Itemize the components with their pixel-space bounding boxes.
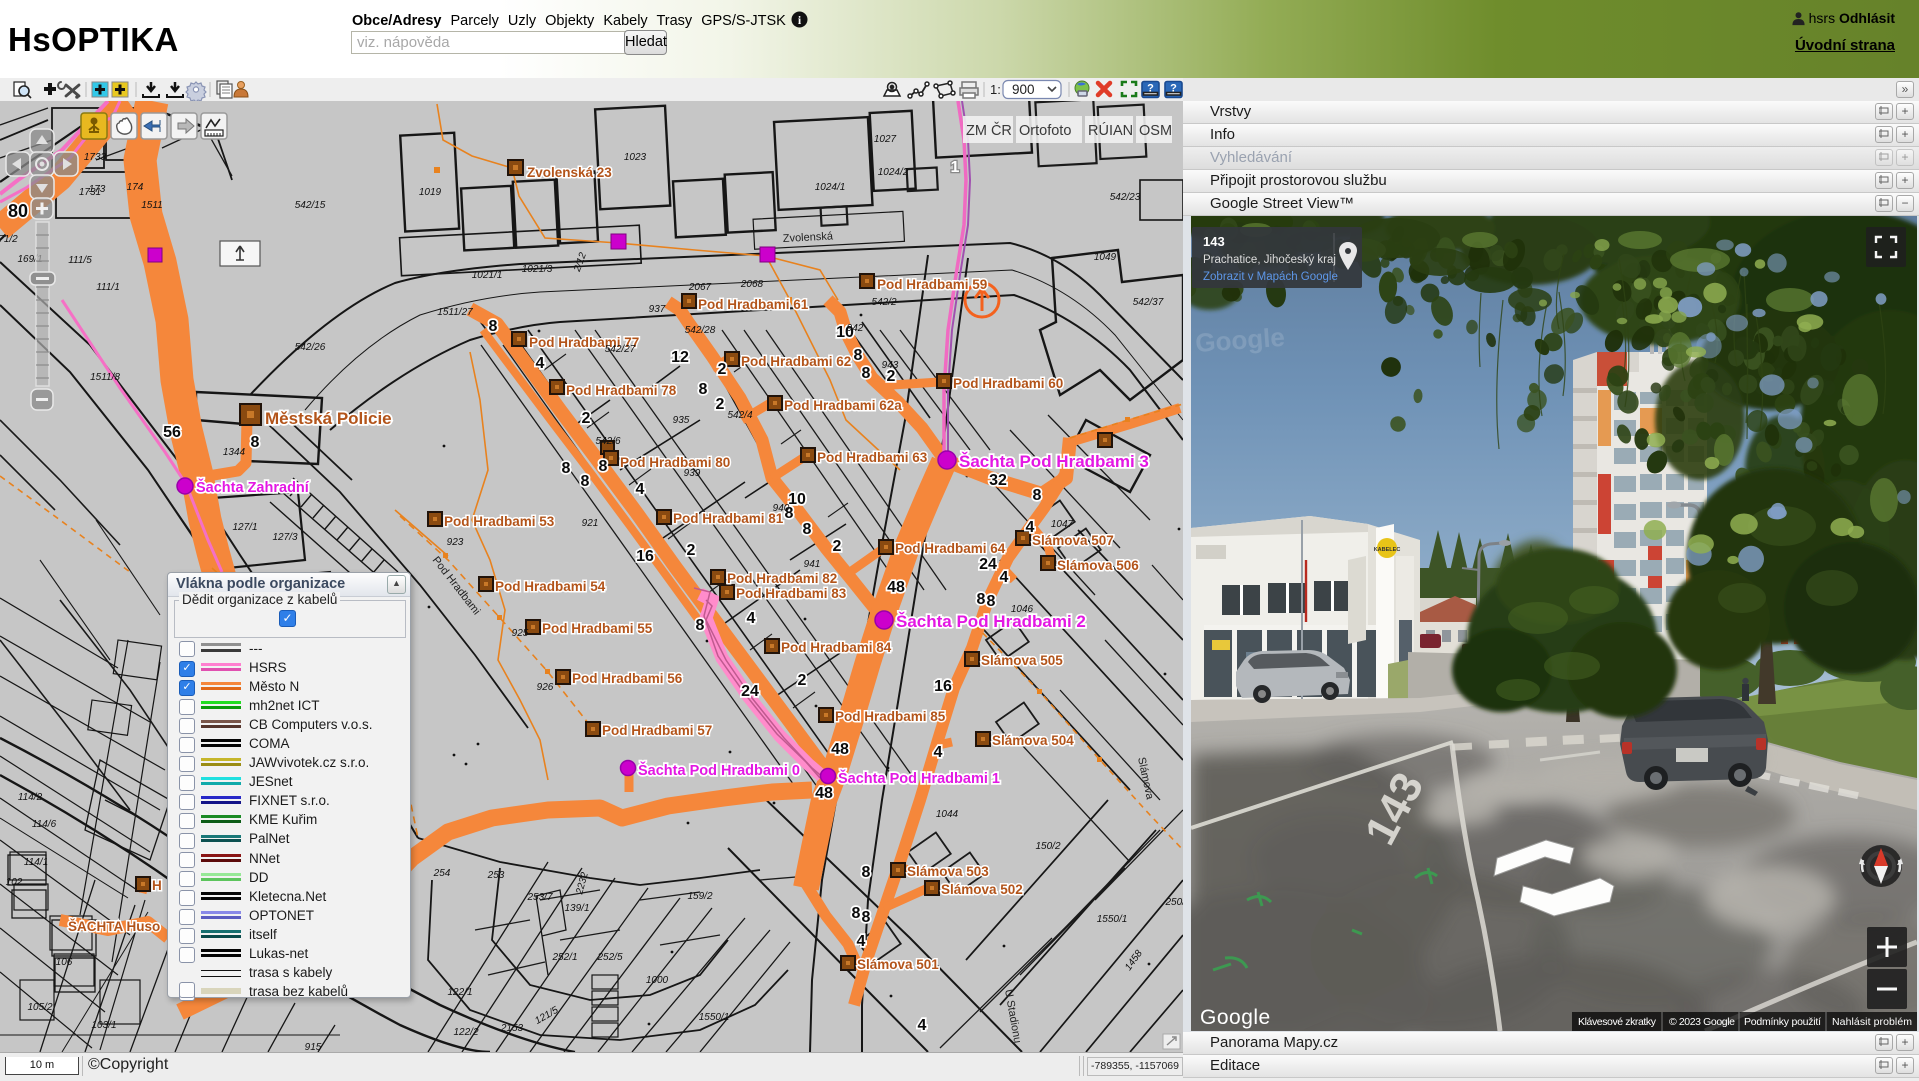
svg-text:12: 12 <box>671 349 689 366</box>
svg-text:4: 4 <box>1026 519 1035 536</box>
svg-text:Pod Hradbami 62: Pod Hradbami 62 <box>741 354 851 369</box>
svg-text:8: 8 <box>854 347 863 364</box>
svg-text:1024/2: 1024/2 <box>878 167 909 178</box>
svg-text:Šachta Pod Hradbami 1: Šachta Pod Hradbami 1 <box>838 769 1000 787</box>
svg-text:900: 900 <box>1012 82 1035 97</box>
svg-text:111/1: 111/1 <box>96 282 120 293</box>
svg-text:253/7: 253/7 <box>526 892 552 903</box>
svg-text:8: 8 <box>489 318 498 335</box>
svg-text:4: 4 <box>857 933 866 950</box>
svg-text:139/1: 139/1 <box>564 903 589 914</box>
svg-text:2: 2 <box>833 538 842 555</box>
svg-text:Šachta Pod Hradbami 2: Šachta Pod Hradbami 2 <box>896 612 1086 631</box>
svg-text:ŠACHTA Huso: ŠACHTA Huso <box>68 919 160 934</box>
svg-text:Pod Hradbami 60: Pod Hradbami 60 <box>953 376 1063 391</box>
svg-text:122/1: 122/1 <box>447 987 472 998</box>
svg-text:Pod Hradbami 57: Pod Hradbami 57 <box>602 723 712 738</box>
svg-text:Nahlásit problém: Nahlásit problém <box>1832 1016 1912 1028</box>
svg-text:940: 940 <box>773 503 790 514</box>
svg-text:Slámova 503: Slámova 503 <box>907 864 989 879</box>
svg-text:542/28: 542/28 <box>685 325 716 336</box>
svg-text:Pod Hradbami 83: Pod Hradbami 83 <box>736 586 847 601</box>
svg-text:8: 8 <box>581 473 590 490</box>
svg-text:Slámova 502: Slámova 502 <box>941 882 1023 897</box>
svg-text:105/2: 105/2 <box>27 1002 52 1013</box>
svg-text:OSM: OSM <box>1139 123 1172 139</box>
svg-text:127/3: 127/3 <box>272 532 297 543</box>
svg-text:4: 4 <box>1000 569 1009 586</box>
svg-text:Zobrazit v Mapách Google: Zobrazit v Mapách Google <box>1203 271 1338 283</box>
svg-text:2: 2 <box>798 672 807 689</box>
svg-text:48: 48 <box>831 741 849 758</box>
svg-text:H: H <box>152 878 162 893</box>
svg-text:24: 24 <box>979 556 997 573</box>
svg-text:114/2: 114/2 <box>18 792 43 803</box>
svg-text:8: 8 <box>562 460 571 477</box>
svg-text:941: 941 <box>804 559 821 570</box>
svg-text:16: 16 <box>636 548 654 565</box>
svg-text:8: 8 <box>852 905 861 922</box>
svg-text:173: 173 <box>89 184 106 195</box>
svg-text:253: 253 <box>487 870 505 881</box>
svg-text:2153: 2153 <box>500 1023 524 1034</box>
svg-text:127/1: 127/1 <box>232 522 257 533</box>
svg-text:2068: 2068 <box>740 279 764 290</box>
svg-text:542/4: 542/4 <box>727 410 752 421</box>
svg-text:KABELEC: KABELEC <box>1374 547 1401 553</box>
svg-text:1: 1 <box>951 159 960 176</box>
svg-text:114/6: 114/6 <box>32 819 57 830</box>
svg-text:Zvolenská 23: Zvolenská 23 <box>527 165 612 180</box>
svg-text:1044: 1044 <box>936 809 959 820</box>
svg-text:Městská Policie: Městská Policie <box>265 409 392 428</box>
svg-text:Pod Hradbami 53: Pod Hradbami 53 <box>444 514 555 529</box>
svg-text:1027: 1027 <box>874 134 897 145</box>
svg-text:Slámova 505: Slámova 505 <box>981 653 1063 668</box>
svg-text:1021/3: 1021/3 <box>522 264 553 275</box>
svg-text:102: 102 <box>6 877 23 888</box>
svg-text:80: 80 <box>8 201 28 221</box>
svg-text:8: 8 <box>862 909 871 926</box>
svg-text:254: 254 <box>433 868 451 879</box>
svg-text:1000: 1000 <box>646 975 669 986</box>
svg-text:174: 174 <box>127 182 144 193</box>
svg-text:Pod Hradbami 85: Pod Hradbami 85 <box>835 709 946 724</box>
svg-text:1511/27: 1511/27 <box>437 307 473 318</box>
svg-text:542/27: 542/27 <box>605 344 636 355</box>
svg-text:1:: 1: <box>990 82 1001 97</box>
svg-text:2: 2 <box>687 542 696 559</box>
svg-text:Podmínky použití: Podmínky použití <box>1744 1016 1821 1028</box>
svg-text:542/26: 542/26 <box>295 342 326 353</box>
svg-text:250/8: 250/8 <box>1164 897 1183 908</box>
svg-text:143: 143 <box>1203 234 1225 249</box>
svg-text:71/2: 71/2 <box>0 234 18 245</box>
svg-text:32: 32 <box>989 472 1007 489</box>
svg-text:© 2023 Google: © 2023 Google <box>1669 1016 1735 1028</box>
svg-text:542/2: 542/2 <box>871 297 896 308</box>
svg-text:Pod Hradbami 62a: Pod Hradbami 62a <box>784 398 902 413</box>
svg-text:114/1: 114/1 <box>24 857 48 868</box>
svg-text:4: 4 <box>918 1017 927 1034</box>
svg-text:Google: Google <box>1194 322 1285 358</box>
svg-text:937: 937 <box>649 304 666 315</box>
svg-text:8: 8 <box>599 458 608 475</box>
svg-text:Pod Hradbami 82: Pod Hradbami 82 <box>727 571 837 586</box>
svg-text:Slámova 506: Slámova 506 <box>1057 558 1139 573</box>
svg-text:Šachta Zahradní: Šachta Zahradní <box>196 478 310 496</box>
svg-text:8: 8 <box>977 591 986 608</box>
svg-text:Pod Hradbami 78: Pod Hradbami 78 <box>566 383 677 398</box>
svg-text:56: 56 <box>163 424 181 441</box>
svg-text:Prachatice, Jihočeský kraj: Prachatice, Jihočeský kraj <box>1203 254 1336 266</box>
svg-text:4: 4 <box>747 610 756 627</box>
svg-text:106: 106 <box>56 957 73 968</box>
svg-text:1550/1: 1550/1 <box>699 1012 730 1023</box>
svg-text:915: 915 <box>305 1042 322 1052</box>
svg-text:Pod Hradbami 55: Pod Hradbami 55 <box>542 621 653 636</box>
svg-text:1019: 1019 <box>419 187 442 198</box>
svg-text:150/2: 150/2 <box>1035 841 1060 852</box>
svg-text:1046: 1046 <box>1011 604 1034 615</box>
svg-text:Klávesové zkratky: Klávesové zkratky <box>1578 1016 1657 1028</box>
svg-text:542/15: 542/15 <box>295 200 326 211</box>
svg-text:926: 926 <box>537 682 554 693</box>
svg-text:ZM ČR: ZM ČR <box>966 122 1012 139</box>
svg-text:Ortofoto: Ortofoto <box>1019 123 1071 139</box>
svg-text:16: 16 <box>934 678 952 695</box>
svg-text:8: 8 <box>1033 487 1042 504</box>
svg-text:Pod Hradbami 56: Pod Hradbami 56 <box>572 671 683 686</box>
svg-text:8: 8 <box>862 864 871 881</box>
svg-text:1024/1: 1024/1 <box>815 182 846 193</box>
svg-text:2: 2 <box>582 410 591 427</box>
svg-text:1511/8: 1511/8 <box>90 372 120 383</box>
svg-text:2067: 2067 <box>688 282 712 293</box>
svg-text:Pod Hradbami 64: Pod Hradbami 64 <box>895 541 1006 556</box>
svg-text:1733: 1733 <box>84 152 107 163</box>
svg-text:Pod Hradbami 59: Pod Hradbami 59 <box>877 277 987 292</box>
svg-text:1049: 1049 <box>1094 252 1117 263</box>
svg-text:Pod Hradbami 61: Pod Hradbami 61 <box>698 297 809 312</box>
svg-text:Pod Hradbami 80: Pod Hradbami 80 <box>620 455 730 470</box>
svg-text:939: 939 <box>684 468 701 479</box>
svg-text:4: 4 <box>934 744 943 761</box>
svg-text:?: ? <box>1170 83 1177 95</box>
svg-text:8: 8 <box>696 617 705 634</box>
svg-text:Slámova 504: Slámova 504 <box>992 733 1074 748</box>
svg-text:252/5: 252/5 <box>596 952 622 963</box>
svg-text:?: ? <box>1147 83 1154 95</box>
svg-text:1047: 1047 <box>1051 519 1074 530</box>
svg-text:1023: 1023 <box>624 152 647 163</box>
svg-text:2: 2 <box>718 361 727 378</box>
svg-text:Šachta Pod Hradbami 3: Šachta Pod Hradbami 3 <box>959 452 1149 471</box>
svg-text:Google: Google <box>1200 1006 1271 1029</box>
svg-text:923: 923 <box>447 537 464 548</box>
svg-text:542/6: 542/6 <box>595 436 620 447</box>
svg-text:542/37: 542/37 <box>1133 297 1164 308</box>
svg-text:935: 935 <box>673 415 690 426</box>
svg-text:Slámova 501: Slámova 501 <box>857 957 939 972</box>
svg-text:24: 24 <box>741 683 759 700</box>
svg-text:942: 942 <box>847 323 864 334</box>
svg-text:8: 8 <box>862 365 871 382</box>
svg-text:103/1: 103/1 <box>91 1020 116 1031</box>
svg-text:252/1: 252/1 <box>551 952 577 963</box>
svg-text:159/2: 159/2 <box>687 891 712 902</box>
svg-text:Pod Hradbami 84: Pod Hradbami 84 <box>781 640 892 655</box>
svg-text:1344: 1344 <box>223 447 246 458</box>
svg-text:4: 4 <box>536 355 545 372</box>
svg-text:Slámova 507: Slámova 507 <box>1032 533 1114 548</box>
svg-text:Pod Hradbami 63: Pod Hradbami 63 <box>817 450 928 465</box>
svg-text:1021/1: 1021/1 <box>472 270 503 281</box>
svg-text:Pod Hradbami 54: Pod Hradbami 54 <box>495 579 606 594</box>
svg-text:1550/1: 1550/1 <box>1097 914 1128 925</box>
svg-text:4: 4 <box>636 481 645 498</box>
svg-text:943: 943 <box>882 360 899 371</box>
svg-text:8: 8 <box>987 593 996 610</box>
svg-text:925: 925 <box>512 628 529 639</box>
svg-text:1511: 1511 <box>141 200 163 211</box>
svg-text:542/23: 542/23 <box>1110 192 1141 203</box>
svg-text:8: 8 <box>803 521 812 538</box>
svg-text:Pod Hradbami 81: Pod Hradbami 81 <box>673 511 784 526</box>
svg-text:48: 48 <box>815 785 833 802</box>
svg-text:921: 921 <box>582 518 599 529</box>
svg-text:48: 48 <box>887 579 905 596</box>
svg-text:111/5: 111/5 <box>68 255 92 266</box>
svg-text:122/2: 122/2 <box>453 1027 478 1038</box>
svg-text:8: 8 <box>699 381 708 398</box>
svg-text:2: 2 <box>716 396 725 413</box>
svg-text:RÚIAN: RÚIAN <box>1088 122 1133 139</box>
svg-text:8: 8 <box>251 434 260 451</box>
svg-text:Šachta Pod Hradbami 0: Šachta Pod Hradbami 0 <box>638 761 800 779</box>
